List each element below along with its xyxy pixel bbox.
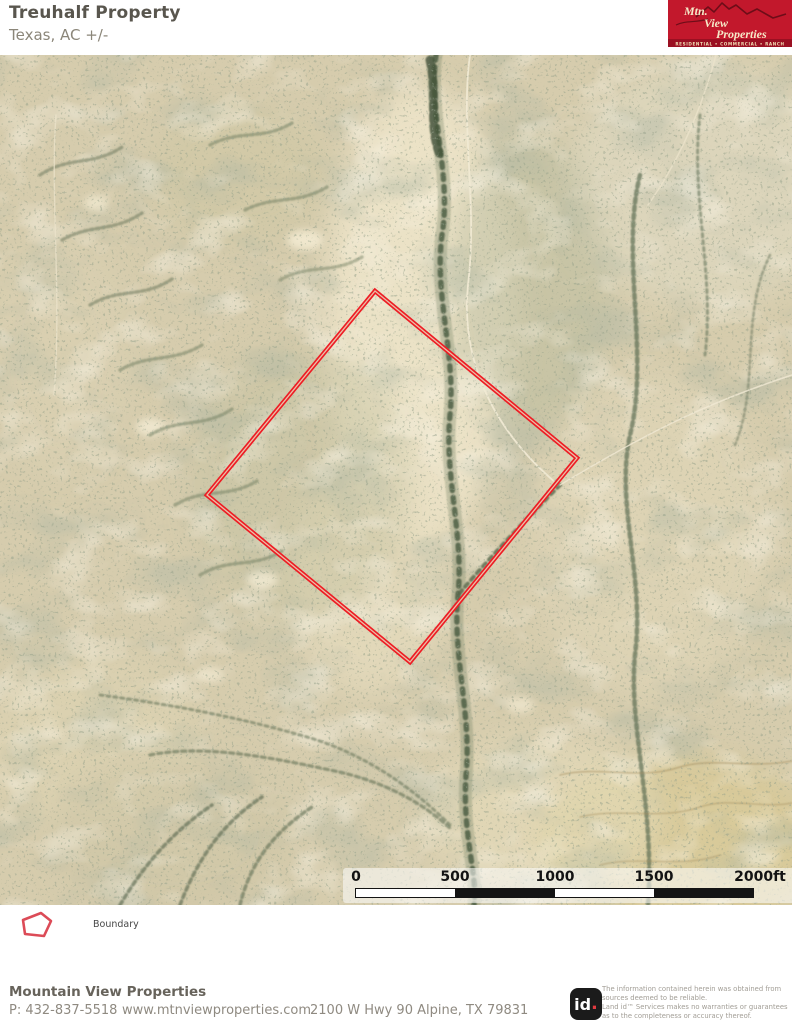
scalebar-segment [555, 889, 654, 897]
aerial-imagery [0, 55, 792, 905]
logo-word-3: Properties [716, 27, 767, 41]
map-scalebar: 0 500 1000 1500 2000ft [343, 868, 792, 903]
page-subtitle: Texas, AC +/- [9, 26, 108, 44]
footer-disclaimer: The information contained herein was obt… [602, 985, 790, 1021]
boundary-legend-icon [15, 910, 59, 942]
map-legend: Boundary [15, 910, 59, 942]
disclaimer-line: as to the completeness or accuracy there… [602, 1012, 790, 1021]
footer-website: www.mtnviewproperties.com [122, 1003, 311, 1018]
map-viewport: 0 500 1000 1500 2000ft [0, 55, 792, 905]
page-title: Treuhalf Property [9, 3, 181, 23]
footer-company-name: Mountain View Properties [9, 984, 206, 1000]
footer-address: 2100 W Hwy 90 Alpine, TX 79831 [310, 1003, 528, 1018]
property-map-page: Treuhalf Property Texas, AC +/- Mtn. Vie… [0, 0, 792, 1024]
land-id-logo: id . [570, 988, 602, 1020]
land-id-logo-dot: . [591, 999, 598, 1009]
scalebar-tick-1500: 1500 [635, 869, 674, 885]
disclaimer-line: Land id™ Services makes no warranties or… [602, 1003, 790, 1012]
scalebar-bar [355, 888, 754, 898]
scalebar-tick-1000: 1000 [536, 869, 575, 885]
land-id-logo-text: id [574, 995, 591, 1014]
scalebar-segment [654, 889, 753, 897]
scalebar-tick-500: 500 [440, 869, 469, 885]
scalebar-segment [455, 889, 554, 897]
footer-phone: P: 432-837-5518 [9, 1003, 117, 1018]
scalebar-tick-0: 0 [351, 869, 361, 885]
disclaimer-line: The information contained herein was obt… [602, 985, 790, 994]
logo-tagline: RESIDENTIAL • COMMERCIAL • RANCH [675, 41, 784, 46]
disclaimer-line: sources deemed to be reliable. [602, 994, 790, 1003]
scalebar-tick-2000: 2000ft [734, 869, 786, 885]
mtn-view-properties-logo: Mtn. View Properties RESIDENTIAL • COMME… [668, 0, 792, 47]
scalebar-segment [356, 889, 455, 897]
legend-label: Boundary [93, 919, 139, 930]
